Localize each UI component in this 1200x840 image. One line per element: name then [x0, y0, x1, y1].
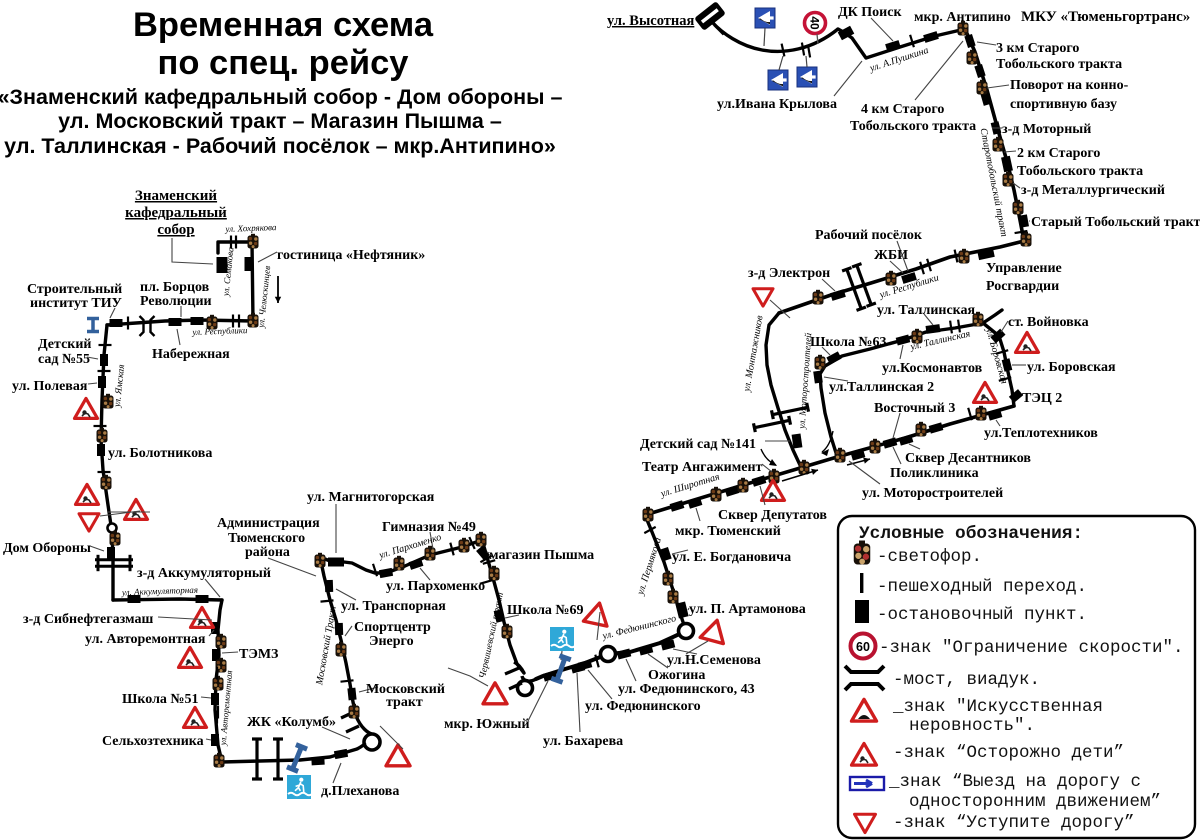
- svg-text:з-д Сибнефтегазмаш: з-д Сибнефтегазмаш: [23, 612, 154, 627]
- svg-text:ул.Таллинская 2: ул.Таллинская 2: [829, 380, 934, 395]
- svg-text:магазин Пышма: магазин Пышма: [489, 548, 594, 563]
- svg-text:односторонним движением”: односторонним движением”: [909, 792, 1161, 812]
- svg-text:«Знаменский кафедральный собор: «Знаменский кафедральный собор - Дом обо…: [0, 85, 562, 109]
- svg-text:ул. Высотная: ул. Высотная: [607, 13, 694, 29]
- svg-text:ул. Федюнинского, 43: ул. Федюнинского, 43: [618, 682, 755, 697]
- svg-text:района: района: [245, 545, 290, 560]
- svg-text:з-д Электрон: з-д Электрон: [748, 266, 830, 281]
- svg-text:Сквер Десантников: Сквер Десантников: [905, 451, 1031, 466]
- svg-text:ЖК «Колумб»: ЖК «Колумб»: [247, 715, 336, 730]
- svg-text:Школа №69: Школа №69: [507, 603, 584, 618]
- svg-text:ул. Московский тракт – Магазин: ул. Московский тракт – Магазин Пышма –: [58, 109, 502, 133]
- svg-text:40: 40: [808, 16, 822, 30]
- svg-text:Набережная: Набережная: [152, 347, 230, 362]
- svg-text:ул. Болотникова: ул. Болотникова: [108, 446, 212, 461]
- svg-text:Театр Ангажимент: Театр Ангажимент: [642, 460, 763, 475]
- svg-text:2 км Старого: 2 км Старого: [1017, 146, 1100, 161]
- svg-text:Школа №51: Школа №51: [122, 692, 199, 707]
- svg-text:Рабочий посёлок: Рабочий посёлок: [815, 228, 923, 243]
- svg-text:ул.Теплотехников: ул.Теплотехников: [984, 426, 1098, 441]
- svg-text:3 км Старого: 3 км Старого: [996, 41, 1079, 56]
- svg-text:-знак “Осторожно дети”: -знак “Осторожно дети”: [893, 743, 1124, 763]
- svg-text:_знак “Выезд на дорогу с: _знак “Выезд на дорогу с: [888, 772, 1141, 792]
- svg-text:ул. Федюнинского: ул. Федюнинского: [585, 699, 701, 714]
- svg-text:ТЭМЗ: ТЭМЗ: [239, 647, 278, 662]
- svg-text:Сквер Депутатов: Сквер Депутатов: [718, 508, 827, 523]
- svg-text:гостиница «Нефтяник»: гостиница «Нефтяник»: [277, 248, 425, 263]
- svg-text:Ожогина: Ожогина: [648, 668, 705, 683]
- svg-text:кафедральный: кафедральный: [125, 205, 227, 221]
- svg-text:Тюменского: Тюменского: [228, 531, 305, 546]
- svg-text:ул. Авторемонтная: ул. Авторемонтная: [85, 632, 206, 647]
- svg-text:Условные обозначения:: Условные обозначения:: [859, 523, 1083, 544]
- svg-text:-знак “Уступите дорогу”: -знак “Уступите дорогу”: [893, 813, 1135, 833]
- svg-text:неровность".: неровность".: [909, 716, 1035, 736]
- svg-text:4 км Старого: 4 км Старого: [861, 102, 944, 117]
- svg-text:сад №55: сад №55: [38, 352, 90, 367]
- svg-text:ул. Хохрякова: ул. Хохрякова: [224, 222, 277, 234]
- svg-text:з-д Металлургический: з-д Металлургический: [1021, 183, 1165, 198]
- svg-text:Спортцентр: Спортцентр: [354, 620, 431, 635]
- svg-text:-светофор.: -светофор.: [877, 547, 982, 567]
- svg-text:Детский: Детский: [38, 337, 91, 352]
- svg-text:Росгвардии: Росгвардии: [986, 279, 1059, 294]
- svg-text:з-д Моторный: з-д Моторный: [1002, 122, 1091, 137]
- svg-text:ул. Республики: ул. Республики: [191, 325, 248, 337]
- svg-text:Управление: Управление: [986, 261, 1062, 276]
- svg-text:Энерго: Энерго: [369, 634, 414, 649]
- svg-text:по спец. рейсу: по спец. рейсу: [158, 44, 409, 82]
- svg-text:Дом Обороны: Дом Обороны: [3, 541, 91, 556]
- svg-text:ДК Поиск: ДК Поиск: [838, 5, 902, 20]
- svg-text:Знаменский: Знаменский: [135, 188, 218, 204]
- svg-text:60: 60: [856, 640, 870, 654]
- svg-text:Революции: Революции: [140, 294, 212, 309]
- svg-text:д.Плеханова: д.Плеханова: [321, 784, 399, 799]
- svg-text:мкр. Тюменский: мкр. Тюменский: [675, 524, 781, 539]
- svg-text:ул. Е. Богдановича: ул. Е. Богдановича: [672, 550, 791, 565]
- svg-text:Тобольского тракта: Тобольского тракта: [1017, 164, 1143, 179]
- svg-text:ул.Ивана Крылова: ул.Ивана Крылова: [717, 97, 837, 112]
- svg-text:ул. Таллинская - Рабочий посёл: ул. Таллинская - Рабочий посёлок – мкр.А…: [4, 134, 556, 158]
- svg-text:-мост, виадук.: -мост, виадук.: [893, 670, 1040, 690]
- svg-text:ул.Н.Семенова: ул.Н.Семенова: [667, 653, 761, 668]
- svg-text:ТЭЦ 2: ТЭЦ 2: [1022, 391, 1062, 406]
- svg-text:ул. Магнитогорская: ул. Магнитогорская: [307, 490, 435, 505]
- svg-text:мкр. Южный: мкр. Южный: [444, 717, 530, 732]
- svg-text:ул. Пархоменко: ул. Пархоменко: [386, 579, 485, 594]
- svg-text:ЖБИ: ЖБИ: [874, 248, 908, 263]
- svg-text:ул.Космонавтов: ул.Космонавтов: [882, 361, 983, 376]
- svg-text:тракт: тракт: [386, 695, 423, 710]
- svg-text:-знак "Ограничение скорости".: -знак "Ограничение скорости".: [879, 638, 1184, 658]
- svg-text:ул. Моторостроителей: ул. Моторостроителей: [862, 486, 1003, 501]
- svg-text:собор: собор: [157, 222, 194, 238]
- svg-text:-остановочный пункт.: -остановочный пункт.: [877, 605, 1087, 625]
- svg-text:Школа №63: Школа №63: [810, 335, 887, 350]
- svg-text:ул. Полевая: ул. Полевая: [12, 379, 88, 394]
- svg-text:Временная схема: Временная схема: [133, 6, 434, 44]
- svg-text:ул. П. Артамонова: ул. П. Артамонова: [689, 602, 806, 617]
- svg-text:з-д Аккумуляторный: з-д Аккумуляторный: [137, 566, 271, 581]
- svg-text:ул. Транспорная: ул. Транспорная: [341, 599, 446, 614]
- svg-text:мкр. Антипино: мкр. Антипино: [914, 10, 1011, 25]
- svg-text:Сельхозтехника: Сельхозтехника: [102, 734, 204, 749]
- svg-text:Детский сад №141: Детский сад №141: [640, 437, 756, 452]
- svg-text:Восточный 3: Восточный 3: [874, 401, 955, 416]
- svg-text:ул. Таллинская: ул. Таллинская: [877, 303, 976, 318]
- svg-text:Строительный: Строительный: [27, 282, 122, 297]
- svg-text:Гимназия №49: Гимназия №49: [382, 520, 476, 535]
- svg-text:МКУ «Тюменьгортранс»: МКУ «Тюменьгортранс»: [1021, 9, 1190, 25]
- svg-text:_знак "Искусственная: _знак "Искусственная: [892, 697, 1103, 717]
- svg-text:ул. Бахарева: ул. Бахарева: [543, 734, 623, 749]
- svg-text:пл. Борцов: пл. Борцов: [140, 280, 210, 295]
- svg-text:Старый Тобольский тракт: Старый Тобольский тракт: [1031, 215, 1200, 230]
- svg-text:Поворот на конно-: Поворот на конно-: [1010, 78, 1129, 93]
- svg-text:ст. Войновка: ст. Войновка: [1008, 315, 1089, 330]
- svg-text:Тобольского тракта: Тобольского тракта: [996, 57, 1122, 72]
- svg-text:Тобольского тракта: Тобольского тракта: [850, 119, 976, 134]
- svg-text:ул. Боровская: ул. Боровская: [1027, 360, 1116, 375]
- svg-text:спортивную базу: спортивную базу: [1010, 97, 1117, 112]
- svg-text:-пешеходный переход.: -пешеходный переход.: [877, 577, 1087, 597]
- svg-text:Администрация: Администрация: [217, 516, 320, 531]
- svg-text:Поликлиника: Поликлиника: [890, 466, 979, 481]
- svg-text:институт ТИУ: институт ТИУ: [30, 296, 122, 311]
